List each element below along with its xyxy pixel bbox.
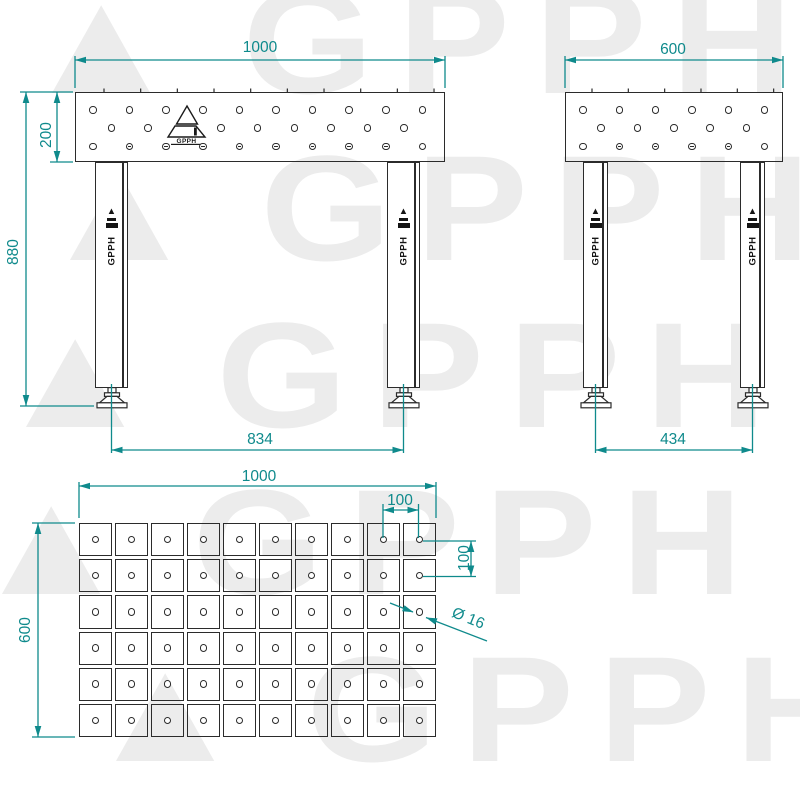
dia-leader-arrow-left <box>402 605 413 612</box>
dim-top-width: 1000 <box>242 468 276 486</box>
dim-side-width: 600 <box>660 41 686 59</box>
dim-front-top-height: 200 <box>38 122 56 148</box>
dim-front-foot-span: 834 <box>247 431 273 449</box>
dim-top-spacing-y: 100 <box>456 545 474 571</box>
dim-front-width: 1000 <box>243 39 277 57</box>
dim-side-foot-span: 434 <box>660 431 686 449</box>
dia-leader-arrow-right <box>426 618 438 625</box>
dim-top-spacing-x: 100 <box>387 492 413 510</box>
tabletop-seam-ticks <box>104 89 774 93</box>
dim-top-height: 600 <box>17 617 35 643</box>
extension-lines <box>20 56 783 737</box>
dim-front-total-height: 880 <box>5 239 23 265</box>
dimension-lines <box>0 0 800 800</box>
technical-drawing-welding-table: ▲GPPH▲GPPH▲GPPH▲GPPH▲GPPH GPPH <box>0 0 800 800</box>
